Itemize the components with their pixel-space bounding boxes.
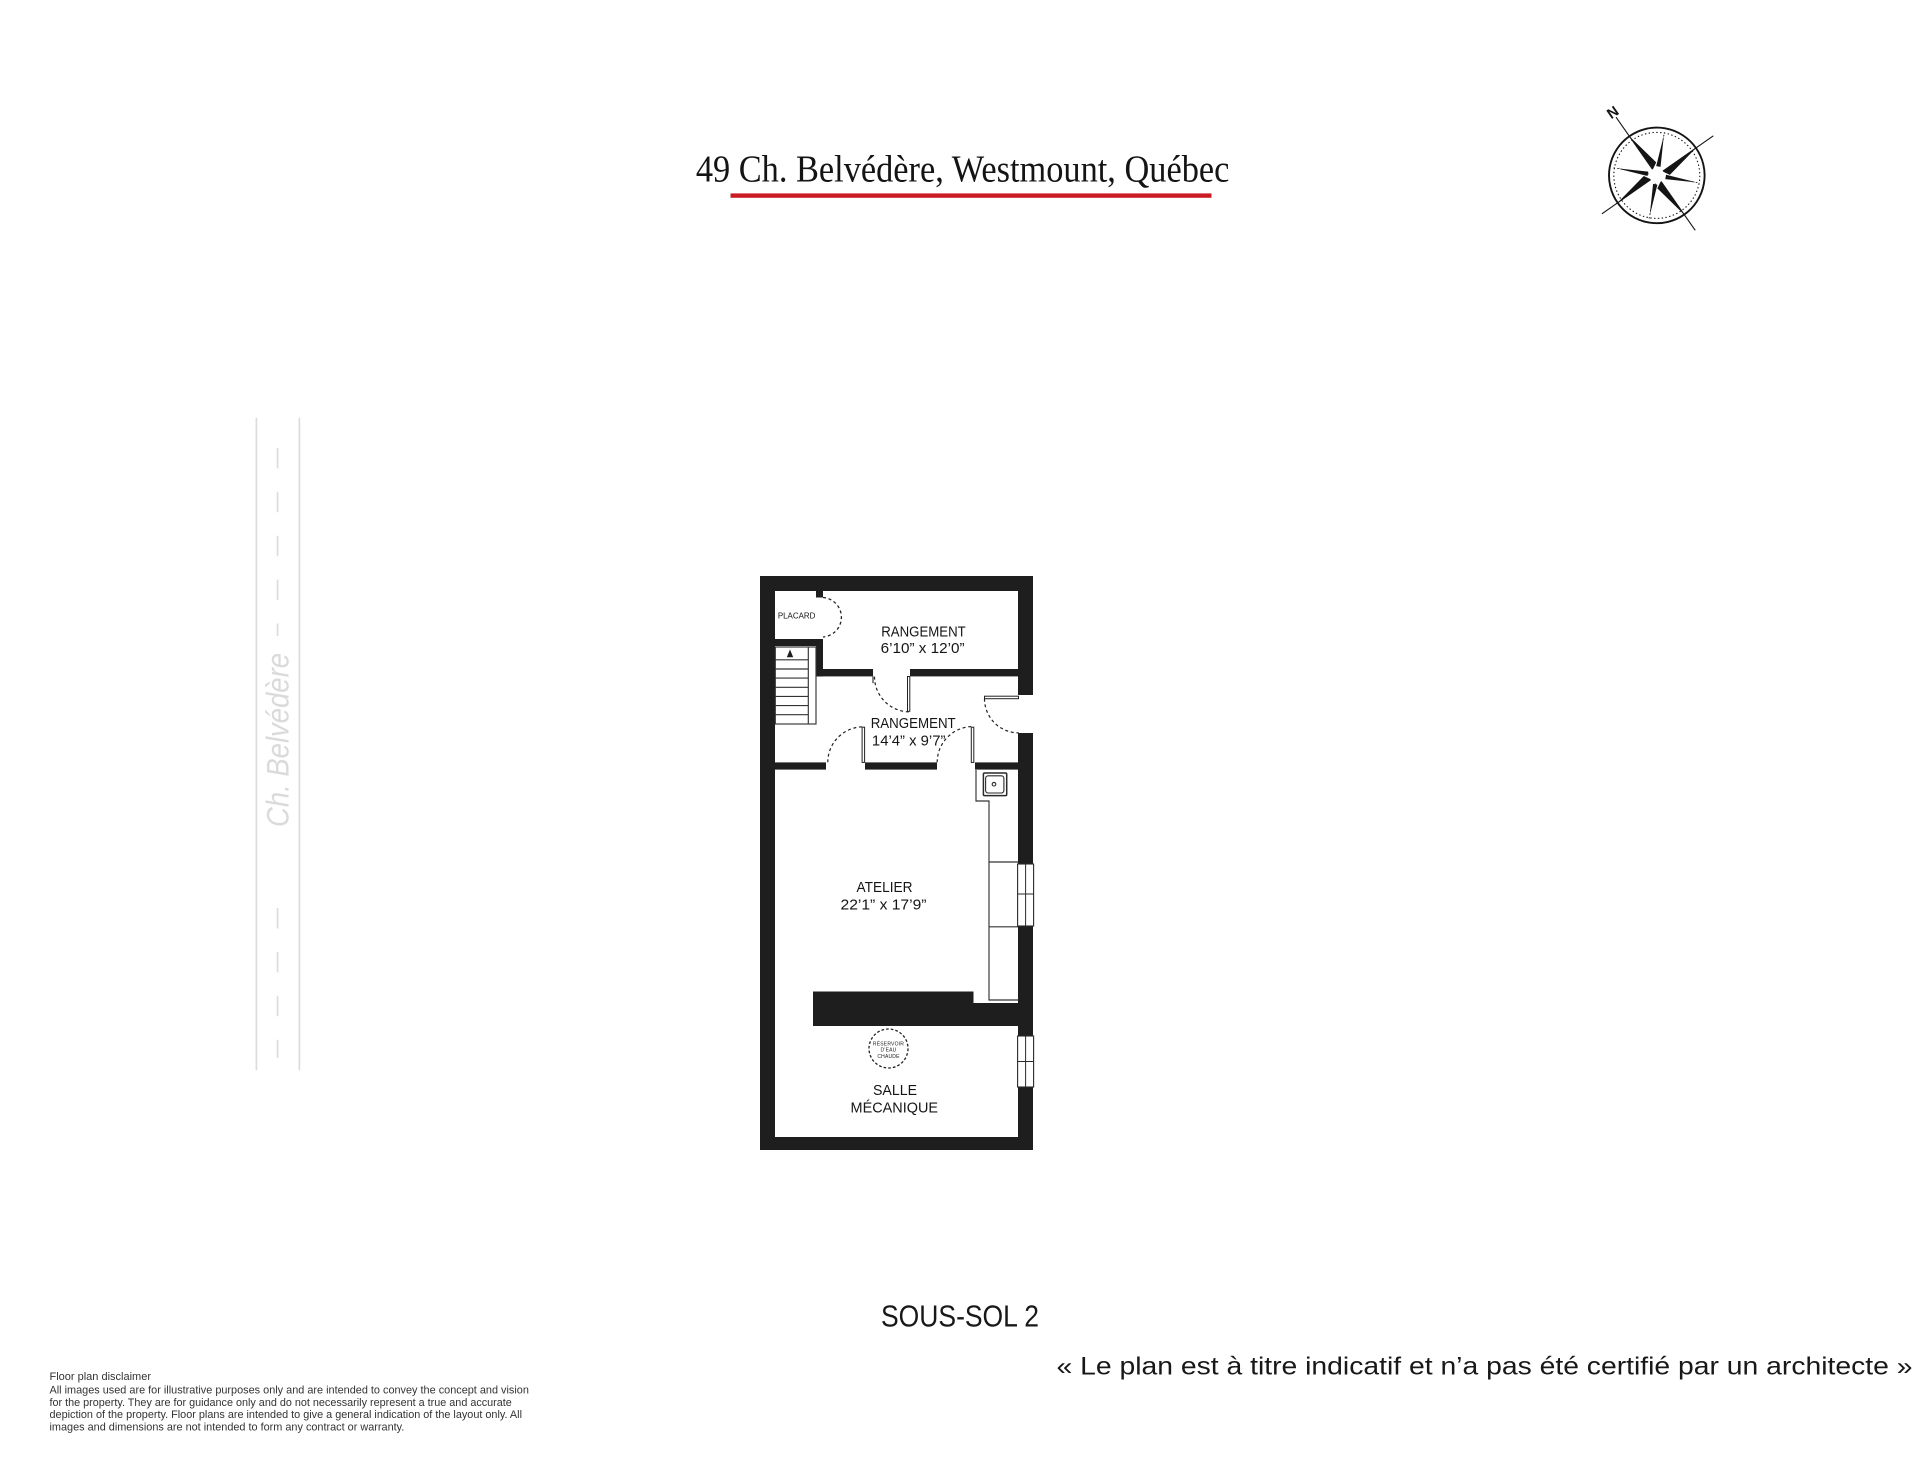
svg-text:CHAUDE: CHAUDE <box>877 1054 900 1060</box>
svg-text:SOUS-SOL 2: SOUS-SOL 2 <box>881 1299 1039 1333</box>
svg-text:« Le plan est à titre indicati: « Le plan est à titre indicatif et n’a p… <box>1057 1352 1913 1380</box>
svg-text:Floor plan disclaimer: Floor plan disclaimer <box>50 1371 152 1383</box>
svg-text:depiction of the property. Flo: depiction of the property. Floor plans a… <box>50 1409 523 1421</box>
svg-text:Ch. Belvédère: Ch. Belvédère <box>260 653 296 827</box>
svg-text:6’10” x 12’0”: 6’10” x 12’0” <box>881 641 965 657</box>
svg-text:ATELIER: ATELIER <box>857 880 913 896</box>
svg-text:SALLE: SALLE <box>873 1083 917 1099</box>
svg-text:14’4” x 9’7”: 14’4” x 9’7” <box>872 733 946 749</box>
svg-text:RÉSERVOIR: RÉSERVOIR <box>873 1040 904 1047</box>
svg-text:RANGEMENT: RANGEMENT <box>881 624 966 640</box>
svg-text:MÉCANIQUE: MÉCANIQUE <box>851 1099 939 1116</box>
svg-text:for the property. They are for: for the property. They are for guidance … <box>50 1397 512 1409</box>
svg-text:D’EAU: D’EAU <box>880 1048 896 1054</box>
svg-text:49 Ch. Belvédère, Westmount, Q: 49 Ch. Belvédère, Westmount, Québec <box>696 149 1230 191</box>
svg-text:images and dimensions are not: images and dimensions are not intended t… <box>50 1421 405 1433</box>
svg-text:All images used are for illust: All images used are for illustrative pur… <box>50 1385 529 1397</box>
svg-text:RANGEMENT: RANGEMENT <box>871 716 956 732</box>
svg-text:PLACARD: PLACARD <box>778 610 816 620</box>
svg-text:22’1” x 17’9”: 22’1” x 17’9” <box>841 898 927 914</box>
